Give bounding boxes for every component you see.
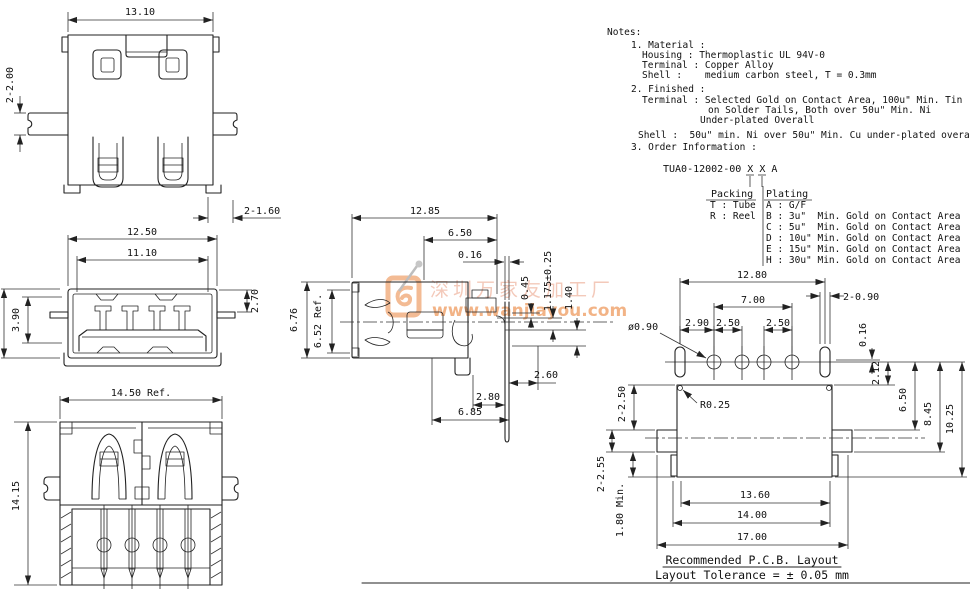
plating-option: E : 15u" Min. Gold on Contact Area	[766, 244, 960, 255]
part-number: TUA0-12002-00 X X A	[663, 164, 777, 175]
packing-option: T : Tube	[710, 200, 756, 211]
side-view: 12.85 6.50 0.16	[289, 206, 615, 442]
front-view: 12.50 11.10 3.90 2.70	[1, 227, 261, 366]
plating-option: D : 10u" Min. Gold on Contact Area	[766, 233, 960, 244]
dim-topview-foot: 2-1.60	[244, 206, 280, 217]
dim-pcb-fillet: R0.25	[700, 400, 730, 411]
dim-frontview-inner-width: 11.10	[127, 248, 157, 259]
dim-pcb-p3: 2.50	[766, 318, 790, 329]
dim-sideview-b2: 2.80	[476, 392, 500, 403]
pcb-layout-view: 12.80 7.00 2-0.90 2.90 2.50 2.50 ø0.90 0…	[596, 270, 967, 582]
note-shell: Shell : medium carbon steel, T = 0.3mm	[642, 70, 877, 81]
dim-sideview-v3: 1.40	[564, 286, 575, 310]
dim-pcb-pitch: 7.00	[741, 295, 765, 306]
dim-frontview-right-height: 2.70	[250, 289, 261, 313]
note-finish-shell: Shell : 50u" min. Ni over 50u" Min. Cu u…	[638, 130, 970, 141]
dim-sideview-length: 12.85	[410, 206, 440, 217]
dim-sideview-b3: 6.85	[458, 407, 482, 418]
dim-sideview-rear: 6.50	[448, 228, 472, 239]
notes-block: Notes: 1. Material : Housing : Thermopla…	[607, 27, 970, 153]
note-finish-terminal-3: Under-plated Overall	[700, 115, 814, 126]
dim-pcb-l3: 1.80 Min.	[615, 483, 626, 537]
dim-pcb-off1: 0.16	[858, 323, 869, 347]
dim-pcb-p1: 2.90	[685, 318, 709, 329]
dim-pcb-v2: 8.45	[923, 402, 934, 426]
dim-sideview-b1: 2.60	[534, 370, 558, 381]
dim-sideview-v2: 1.175±0.25	[543, 251, 554, 311]
wanjiayou-logo-icon	[388, 261, 423, 316]
dim-pcb-b2: 14.00	[737, 510, 767, 521]
bottom-view: 14.50 Ref.	[11, 388, 238, 589]
dim-pcb-v3: 10.25	[945, 404, 956, 434]
order-info-block: TUA0-12002-00 X X A Packing Plating T : …	[663, 164, 960, 266]
dim-frontview-outer-width: 12.50	[127, 227, 157, 238]
dim-sideview-height: 6.76	[289, 308, 300, 332]
notes-title: Notes:	[607, 27, 641, 38]
engineering-drawing-page: 深圳万家友加工厂 www.wanjiayou.com 13.10	[0, 0, 970, 590]
dim-pcb-hole-dia: ø0.90	[628, 322, 658, 333]
plating-option: B : 3u" Min. Gold on Contact Area	[766, 211, 960, 222]
pcb-layout-tolerance: Layout Tolerance = ± 0.05 mm	[655, 568, 849, 582]
dim-bottomview-width: 14.50 Ref.	[111, 388, 171, 399]
note-finished: 2. Finished :	[631, 84, 705, 95]
dim-sideview-tail-thickness: 0.16	[458, 250, 482, 261]
dim-pcb-b1: 13.60	[740, 490, 770, 501]
note-order-info: 3. Order Information :	[631, 142, 757, 153]
dim-sideview-v1: 0.45	[520, 276, 531, 300]
pcb-layout-title: Recommended P.C.B. Layout	[665, 553, 838, 567]
top-view: 13.10 2-2.00 2-1.60	[5, 7, 281, 223]
plating-option: H : 30u" Min. Gold on Contact Area	[766, 255, 960, 266]
usb-connector-drawing: 深圳万家友加工厂 www.wanjiayou.com 13.10	[0, 0, 970, 590]
packing-header: Packing	[711, 189, 753, 200]
plating-header: Plating	[766, 189, 808, 200]
dim-pcb-l2: 2-2.55	[596, 456, 607, 492]
dim-frontview-inner-height: 3.90	[11, 308, 22, 332]
dim-pcb-b3: 17.00	[737, 532, 767, 543]
plating-option: A : G/F	[766, 200, 806, 211]
dim-topview-width: 13.10	[125, 7, 155, 18]
packing-option: R : Reel	[710, 211, 756, 222]
dim-pcb-slot: 2-0.90	[843, 292, 879, 303]
dim-pcb-l1: 2-2.50	[617, 386, 628, 422]
dim-sideview-height-ref: 6.52 Ref.	[313, 294, 324, 348]
dim-pcb-off2: 2.12	[871, 361, 882, 385]
dim-pcb-v1: 6.50	[898, 388, 909, 412]
dim-pcb-p2: 2.50	[716, 318, 740, 329]
dim-topview-tab: 2-2.00	[5, 67, 16, 103]
plating-option: C : 5u" Min. Gold on Contact Area	[766, 222, 960, 233]
dim-pcb-width: 12.80	[737, 270, 767, 281]
dim-bottomview-height: 14.15	[11, 481, 22, 511]
